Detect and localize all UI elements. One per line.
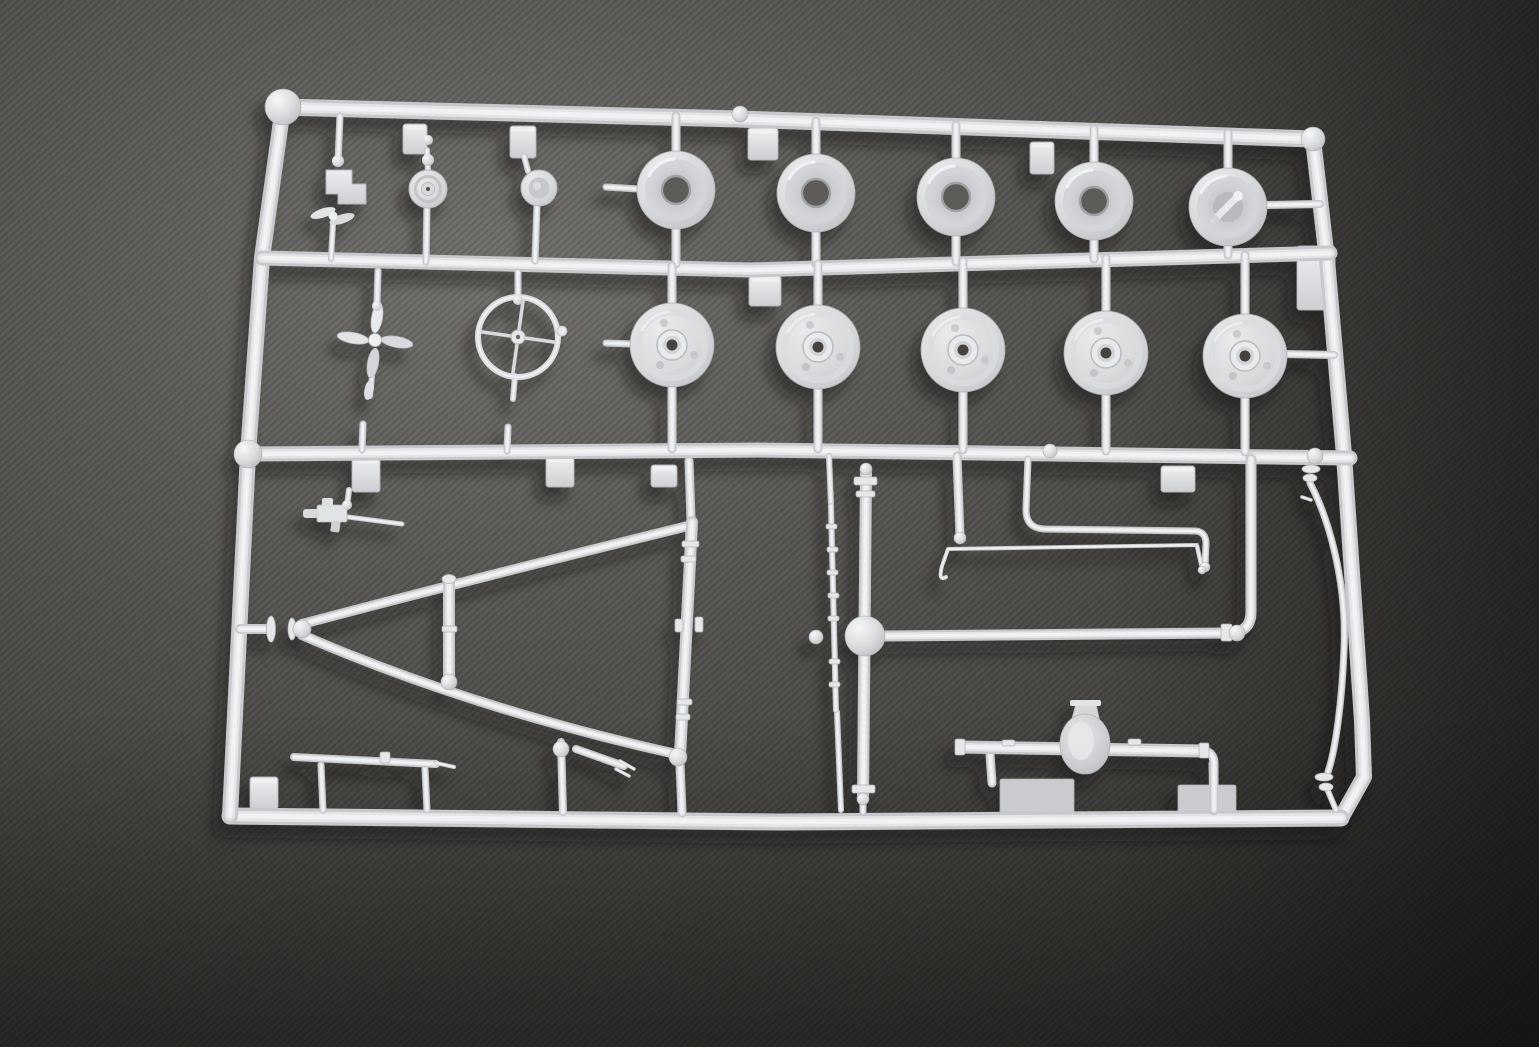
photo-model-kit-sprue bbox=[0, 0, 1539, 1047]
gate-tab-highlight bbox=[252, 779, 276, 783]
wheel-hub-disc bbox=[1064, 311, 1148, 395]
runner-ball-node bbox=[669, 748, 687, 766]
gate-bead bbox=[422, 154, 434, 166]
gate-bead bbox=[342, 500, 352, 510]
rod-collar bbox=[675, 619, 683, 632]
rod-flange bbox=[1303, 474, 1317, 482]
rod-flange bbox=[442, 575, 456, 584]
gate-bead bbox=[423, 135, 433, 145]
runner-ball-node bbox=[234, 440, 262, 468]
runner-ball-node bbox=[293, 620, 311, 638]
gate-bead bbox=[332, 155, 344, 167]
recessed-cap-part bbox=[521, 170, 557, 206]
runner-stub bbox=[606, 343, 632, 344]
wheel-knob bbox=[557, 326, 567, 336]
gate-tab-highlight bbox=[1032, 144, 1052, 148]
runner-stub bbox=[1266, 204, 1320, 205]
rod-collar bbox=[676, 714, 690, 720]
gate-bead bbox=[513, 295, 523, 305]
gate-tab-highlight bbox=[405, 126, 425, 130]
rod-collar bbox=[828, 616, 839, 621]
runner-stub bbox=[426, 207, 427, 262]
runner-ball-node bbox=[1229, 625, 1245, 641]
runner-ball-node bbox=[954, 532, 966, 544]
rod-collar bbox=[829, 659, 840, 664]
rod-collar bbox=[1128, 739, 1141, 745]
runner-ball-node bbox=[1043, 444, 1057, 458]
rod-collar bbox=[1199, 743, 1209, 758]
runner-ball-node bbox=[265, 89, 301, 125]
runner-stub bbox=[362, 424, 363, 450]
rod-collar bbox=[677, 699, 692, 705]
runner-stub bbox=[1286, 354, 1334, 355]
runner-ball-node bbox=[1198, 566, 1206, 574]
rod-collar bbox=[955, 739, 965, 755]
rod-collar bbox=[827, 570, 838, 575]
gate-tab-highlight bbox=[653, 467, 675, 471]
wheel-hub-disc bbox=[630, 303, 714, 387]
rod-collar bbox=[827, 547, 838, 552]
wheel-rim-with-crank bbox=[1189, 168, 1267, 246]
runner-ball-node bbox=[857, 793, 869, 805]
gate-bead bbox=[372, 301, 382, 311]
rod-collar bbox=[1002, 740, 1015, 746]
rod-collar bbox=[682, 541, 699, 547]
gate-tab-highlight bbox=[1163, 468, 1193, 472]
wheel-hub-disc bbox=[921, 308, 1005, 392]
runner-ball-node bbox=[732, 106, 748, 122]
rod-collar bbox=[856, 491, 875, 497]
runner-ball-node bbox=[553, 741, 569, 757]
rod-collar bbox=[828, 593, 839, 598]
wheel-hub-disc bbox=[776, 305, 860, 389]
runner-ball-node bbox=[845, 616, 885, 656]
gate-tab-highlight bbox=[751, 278, 779, 282]
rod-collar bbox=[442, 626, 457, 632]
runner-stub bbox=[507, 427, 508, 451]
rod-collar bbox=[854, 477, 877, 485]
rod-collar bbox=[852, 785, 875, 793]
wheel-rim bbox=[777, 154, 855, 232]
rod-collar bbox=[829, 682, 840, 687]
sprue-photo-canvas bbox=[0, 0, 1539, 1047]
runner-ball-node bbox=[860, 463, 872, 475]
runner-ball-node bbox=[441, 674, 457, 690]
gate-tab-highlight bbox=[750, 130, 776, 134]
rod-collar bbox=[695, 617, 703, 632]
rod-flange bbox=[267, 616, 276, 642]
rod-collar bbox=[826, 524, 837, 529]
wheel-rim bbox=[637, 151, 715, 229]
wheel-hub-disc bbox=[1203, 314, 1287, 398]
gate-tab-highlight bbox=[512, 128, 534, 132]
runner-stub bbox=[377, 271, 378, 303]
molded-plate bbox=[1000, 779, 1074, 816]
rod-collar bbox=[380, 752, 390, 763]
runner-ball-node bbox=[1301, 127, 1325, 151]
pulley-cap-part bbox=[409, 170, 447, 208]
rod-flange bbox=[1319, 783, 1333, 791]
runner-ball-node bbox=[809, 630, 823, 644]
rod-flange bbox=[1302, 465, 1320, 473]
wheel-rim bbox=[917, 158, 995, 236]
wheel-rim bbox=[1055, 162, 1133, 240]
runner-ball-node bbox=[1307, 448, 1323, 464]
rod-flange bbox=[1315, 773, 1333, 781]
rod-collar bbox=[681, 556, 696, 562]
